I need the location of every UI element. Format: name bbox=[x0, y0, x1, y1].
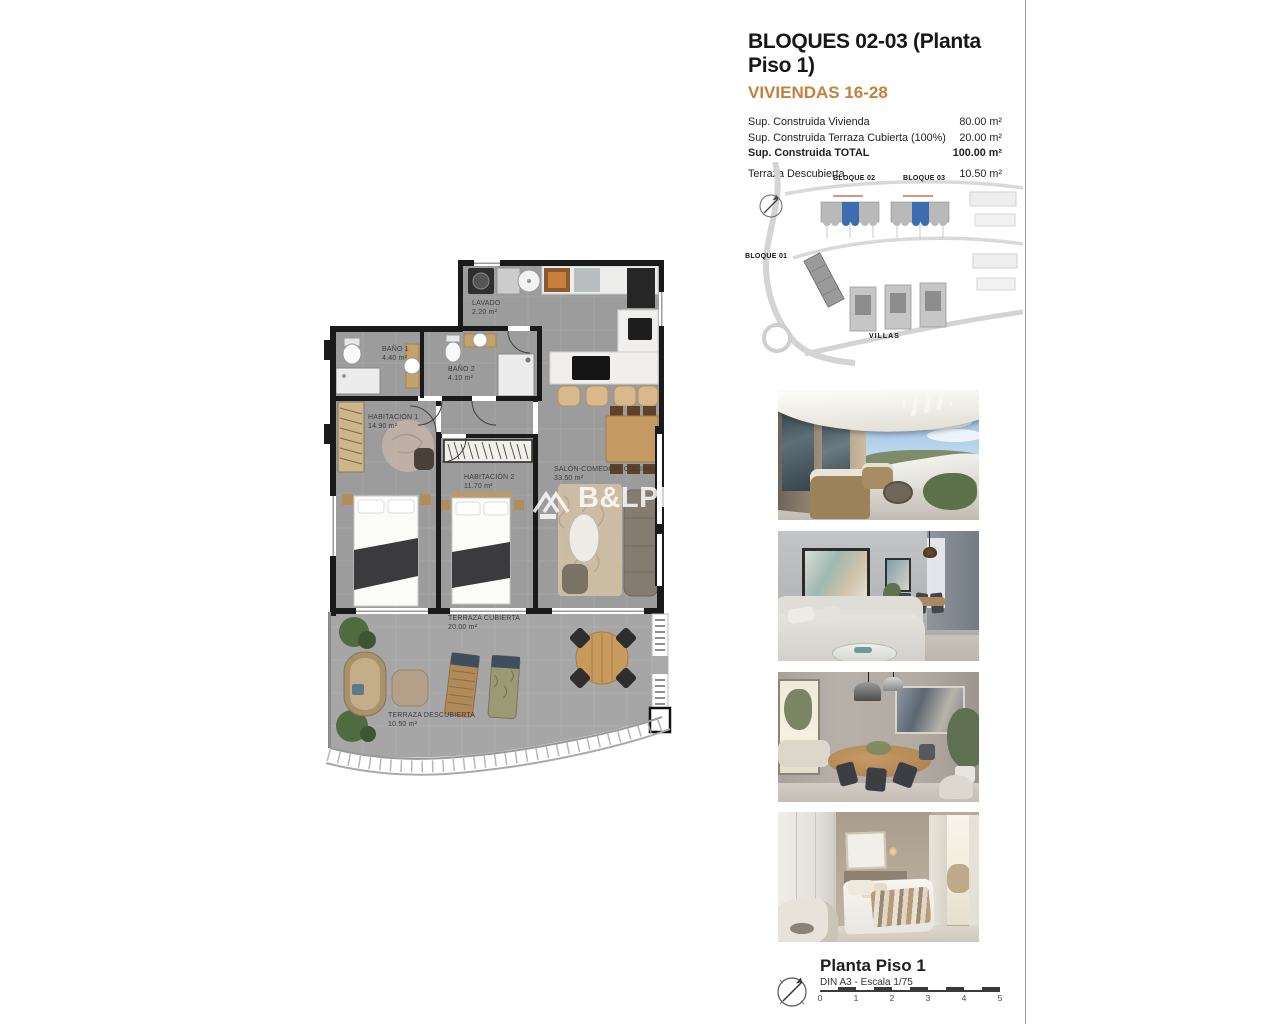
table-centerpiece bbox=[866, 741, 890, 755]
room-label-lavado: LAVADO 2.20 m² bbox=[472, 300, 501, 318]
planter-greenery bbox=[923, 473, 977, 509]
brand-watermark: B&LPROM COSTA bbox=[532, 484, 728, 526]
table-decor bbox=[854, 647, 872, 654]
area-row-total: Sup. Construida TOTAL 100.00 m² bbox=[748, 146, 1002, 162]
wall-art bbox=[802, 548, 870, 600]
laundry-fixtures bbox=[468, 268, 540, 294]
site-label-bloque-03: BLOQUE 03 bbox=[903, 175, 945, 182]
area-value: 80.00 m² bbox=[959, 115, 1002, 131]
scale-tick: 4 bbox=[962, 993, 967, 1003]
foreground-decor bbox=[790, 923, 814, 935]
striped-throw bbox=[871, 886, 932, 927]
area-label: Sup. Construida Terraza Cubierta (100%) bbox=[748, 131, 946, 147]
site-label-bloque-02: BLOQUE 02 bbox=[833, 175, 875, 182]
room-label-habitacion1: HABITACIÓN 1 14.90 m² bbox=[368, 414, 419, 432]
drawing-scale-note: DIN A3 - Escala 1/75 bbox=[820, 977, 913, 988]
wicker-sofa bbox=[810, 469, 870, 518]
photo-dining-room bbox=[778, 672, 979, 802]
site-label-villas: VILLAS bbox=[869, 333, 900, 340]
scale-bar-segment bbox=[946, 987, 964, 990]
scale-bar-line bbox=[820, 990, 1000, 992]
vertical-divider bbox=[1025, 0, 1026, 1024]
scale-bar-segment bbox=[838, 987, 856, 990]
header: BLOQUES 02-03 (Planta Piso 1) VIVIENDAS … bbox=[748, 30, 1002, 182]
site-label-bloque-01: BLOQUE 01 bbox=[745, 253, 787, 260]
area-value: 100.00 m² bbox=[953, 146, 1002, 162]
area-label: Sup. Construida Vivienda bbox=[748, 115, 870, 131]
foreground-chair bbox=[778, 898, 838, 942]
room-label-habitacion2: HABITACIÓN 2 11.70 m² bbox=[464, 474, 515, 492]
building-bloque-03 bbox=[891, 195, 949, 238]
scale-tick: 5 bbox=[998, 993, 1003, 1003]
scale-bar-segment bbox=[874, 987, 892, 990]
brand-name: B&LPROM bbox=[578, 484, 728, 513]
photo-bedroom bbox=[778, 812, 979, 942]
pendant-lamp bbox=[923, 547, 937, 559]
scale-bar-segment bbox=[910, 987, 928, 990]
page-title: BLOQUES 02-03 (Planta Piso 1) bbox=[748, 30, 1002, 78]
cloud bbox=[927, 429, 979, 442]
plan-sheet: BLOQUES 02-03 (Planta Piso 1) VIVIENDAS … bbox=[0, 0, 1280, 1024]
photo-living-room bbox=[778, 531, 979, 661]
pendant-cord bbox=[929, 531, 930, 548]
pendant-lamp bbox=[883, 677, 903, 691]
pendant-lamp bbox=[854, 682, 880, 700]
building-bloque-01 bbox=[804, 253, 844, 307]
room-label-bano2: BAÑO 2 4.10 m² bbox=[448, 366, 475, 384]
compass-icon bbox=[772, 966, 814, 1014]
brand-subname: COSTA bbox=[578, 516, 728, 526]
site-compass-icon bbox=[760, 195, 782, 217]
area-label: Sup. Construida TOTAL bbox=[748, 146, 869, 162]
floor-plan: LAVADO 2.20 m² BAÑO 1 4.40 m² BAÑO 2 4.1… bbox=[322, 256, 694, 786]
plant bbox=[947, 708, 979, 768]
scale-tick: 3 bbox=[926, 993, 931, 1003]
side-table bbox=[883, 481, 913, 505]
building-bloque-02 bbox=[821, 195, 879, 238]
site-plan: BLOQUE 02 BLOQUE 03 BLOQUE 01 VILLAS bbox=[745, 162, 1023, 367]
scale-bar-segment bbox=[982, 987, 1000, 990]
dining-chair bbox=[865, 767, 887, 792]
room-label-terraza-cubierta: TERRAZA CUBIERTA 20.00 m² bbox=[448, 615, 520, 633]
scale-tick: 1 bbox=[854, 993, 859, 1003]
balcony-chair bbox=[947, 864, 971, 893]
room-label-bano1: BAÑO 1 4.40 m² bbox=[382, 346, 409, 364]
photo-terrace-exterior bbox=[778, 390, 979, 520]
villas-buildings bbox=[850, 283, 946, 331]
accent-chair bbox=[939, 775, 973, 800]
scale-tick: 2 bbox=[890, 993, 895, 1003]
sofa bbox=[778, 740, 830, 767]
scale-tick: 0 bbox=[818, 993, 823, 1003]
room-label-terraza-descubierta: TERRAZA DESCUBIERTA 10.50 m² bbox=[388, 712, 475, 730]
wall-art bbox=[846, 831, 887, 869]
brand-house-icon bbox=[532, 484, 572, 524]
drawing-title: Planta Piso 1 bbox=[820, 956, 926, 976]
sheer-curtain bbox=[969, 815, 979, 927]
area-row: Sup. Construida Terraza Cubierta (100%) … bbox=[748, 131, 1002, 147]
dining-chair bbox=[919, 744, 935, 761]
page-subtitle: VIVIENDAS 16-28 bbox=[748, 83, 1002, 103]
wall-lamp bbox=[889, 847, 897, 856]
area-row: Sup. Construida Vivienda 80.00 m² bbox=[748, 115, 1002, 131]
plant bbox=[784, 689, 812, 731]
room-label-salon: SALÓN-COMEDOR- COCINA 33.50 m² bbox=[554, 466, 652, 484]
area-value: 20.00 m² bbox=[959, 131, 1002, 147]
